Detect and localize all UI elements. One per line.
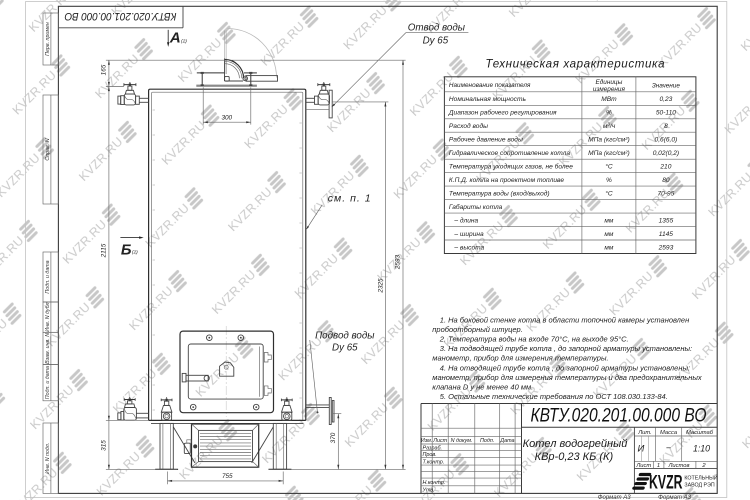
svg-text:– ширина: – ширина [449, 231, 484, 238]
svg-text:измерения: измерения [593, 86, 626, 93]
svg-text:Рабочее давление воды: Рабочее давление воды [449, 136, 523, 144]
svg-text:Утв.: Утв. [422, 488, 435, 494]
svg-text:Т.контр.: Т.контр. [423, 460, 445, 466]
svg-text:Формат А3: Формат А3 [598, 495, 631, 500]
svg-text:МПа (кгс/см²): МПа (кгс/см²) [588, 137, 630, 144]
svg-text:165: 165 [100, 64, 107, 75]
svg-text:Номинальная мощность: Номинальная мощность [449, 96, 527, 103]
svg-text:КВр-0,23 КБ (К): КВр-0,23 КБ (К) [535, 451, 614, 463]
svg-text:°С: °С [605, 163, 613, 171]
svg-text:Лит.: Лит. [637, 430, 652, 436]
svg-text:Подп.: Подп. [480, 438, 494, 444]
svg-text:Габариты котла: Габариты котла [449, 203, 503, 211]
svg-text:(2): (2) [132, 249, 138, 255]
svg-text:2115: 2115 [100, 243, 107, 258]
svg-text:210: 210 [659, 164, 671, 171]
svg-text:Dy 65: Dy 65 [332, 343, 358, 354]
svg-text:1355: 1355 [659, 218, 674, 225]
svg-text:0,23: 0,23 [659, 96, 672, 103]
svg-text:Перв. примен: Перв. примен [45, 22, 51, 56]
svg-text:мм: мм [604, 244, 614, 251]
svg-text:Dy 65: Dy 65 [423, 36, 449, 47]
svg-text:4. На отводящей трубе котла ,: 4. На отводящей трубе котла , до запорно… [440, 363, 690, 372]
svg-text:Разраб.: Разраб. [423, 445, 443, 451]
svg-text:Инв. N дубл: Инв. N дубл [45, 302, 51, 331]
svg-text:ЗАВОД РЭП: ЗАВОД РЭП [684, 483, 714, 489]
svg-text:Диапазон рабочего регулировани: Диапазон рабочего регулирования [448, 109, 557, 117]
svg-text:80: 80 [662, 177, 670, 184]
svg-text:755: 755 [222, 473, 233, 480]
svg-text:Взам. инв. N: Взам. инв. N [45, 333, 51, 364]
svg-text:/ч: /ч [609, 123, 616, 130]
svg-text:1: 1 [657, 463, 660, 469]
svg-text:Подвод воды: Подвод воды [315, 330, 375, 341]
svg-text:– длина: – длина [449, 217, 479, 225]
svg-text:–: – [665, 443, 671, 452]
svg-text:Техническая характеристика: Техническая характеристика [485, 58, 665, 71]
svg-text:манометр, прибор для измерения: манометр, прибор для измерения температу… [432, 354, 608, 363]
svg-text:Расход воды: Расход воды [449, 122, 488, 130]
svg-text:пробоотборный штуцер.: пробоотборный штуцер. [432, 325, 523, 334]
svg-text:315: 315 [100, 440, 107, 451]
svg-text:А: А [169, 30, 181, 47]
svg-text:Значение: Значение [652, 83, 680, 90]
svg-text:Инв. N подл.: Инв. N подл. [45, 443, 51, 474]
svg-text:Листов: Листов [667, 463, 689, 469]
svg-text:манометр, прибор для измерения: манометр, прибор для измерения температу… [432, 373, 702, 382]
svg-text:5. Остальные технические треб: 5. Остальные технические требования по О… [440, 392, 668, 401]
svg-text:Котел водогрейный: Котел водогрейный [523, 438, 628, 450]
svg-text:°С: °С [605, 190, 613, 198]
svg-text:3. На подводящей трубе котла: 3. На подводящей трубе котла , до запорн… [440, 344, 692, 353]
svg-text:МПа (кгс/см²): МПа (кгс/см²) [588, 150, 630, 157]
svg-text:Справ. N: Справ. N [45, 138, 51, 160]
svg-text:Температура уходящих газов, не: Температура уходящих газов, не более [449, 163, 573, 171]
svg-text:2325: 2325 [377, 278, 384, 294]
svg-text:КВТУ.020.201.00.000 ВО: КВТУ.020.201.00.000 ВО [531, 406, 707, 427]
svg-text:2. Температура воды на входе: 2. Температура воды на входе 70°С, на вы… [439, 335, 629, 344]
svg-text:KVZR: KVZR [649, 471, 683, 493]
svg-text:Пров.: Пров. [423, 452, 437, 458]
svg-text:мм: мм [604, 231, 614, 238]
svg-text:МВт: МВт [601, 96, 617, 103]
svg-text:Формат А3: Формат А3 [658, 495, 691, 500]
svg-text:70-95: 70-95 [657, 191, 674, 198]
svg-text:Лист: Лист [635, 463, 651, 469]
svg-text:1:10: 1:10 [693, 444, 710, 454]
svg-text:0,02(0,2): 0,02(0,2) [653, 150, 679, 157]
svg-text:(2): (2) [181, 39, 187, 45]
svg-text:Дата: Дата [499, 438, 514, 444]
svg-text:см. п. 1: см. п. 1 [328, 192, 372, 204]
svg-text:И: И [638, 444, 645, 455]
svg-text:Подп. и дата: Подп. и дата [45, 366, 51, 399]
svg-text:%: % [606, 177, 612, 184]
svg-text:КВТУ.020.201.00.000 ВО: КВТУ.020.201.00.000 ВО [64, 10, 176, 22]
svg-text:Температура воды (вход/выход): Температура воды (вход/выход) [449, 190, 550, 198]
svg-text:мм: мм [604, 218, 614, 225]
svg-text:1145: 1145 [659, 231, 674, 238]
svg-text:0,6(6,0): 0,6(6,0) [655, 137, 678, 144]
svg-text:50-110: 50-110 [656, 110, 676, 117]
svg-text:КОТЕЛЬНЫЙ: КОТЕЛЬНЫЙ [684, 474, 717, 482]
svg-text:клапана D у не менее 40 мм.: клапана D у не менее 40 мм. [432, 383, 533, 392]
svg-text:2593: 2593 [658, 244, 674, 251]
svg-text:370: 370 [330, 432, 337, 443]
svg-text:1. На боковой стенке котла в: 1. На боковой стенке котла в области топ… [440, 315, 689, 324]
svg-text:N докум.: N докум. [451, 438, 473, 444]
svg-text:Отвод воды: Отвод воды [408, 23, 466, 34]
svg-text:%: % [606, 110, 612, 117]
svg-text:– высота: – высота [449, 244, 485, 251]
svg-text:Единицы: Единицы [596, 78, 623, 86]
svg-text:Изм.: Изм. [421, 438, 433, 444]
svg-text:8: 8 [664, 123, 668, 130]
svg-text:Б: Б [121, 242, 132, 259]
svg-text:Подп. и дата: Подп. и дата [45, 260, 51, 293]
svg-text:Масса: Масса [660, 430, 678, 436]
svg-text:Лист: Лист [432, 438, 447, 444]
svg-text:Наименование показателя: Наименование показателя [449, 82, 531, 89]
svg-text:2593: 2593 [395, 254, 402, 270]
svg-text:Н.контр.: Н.контр. [423, 480, 446, 486]
svg-text:Масштаб: Масштаб [686, 430, 714, 436]
svg-text:Гидравлическое сопротивление к: Гидравлическое сопротивление котла [449, 149, 570, 157]
svg-text:К.П.Д. котла на проектном топл: К.П.Д. котла на проектном топливе [449, 177, 564, 184]
svg-text:300: 300 [221, 115, 232, 122]
